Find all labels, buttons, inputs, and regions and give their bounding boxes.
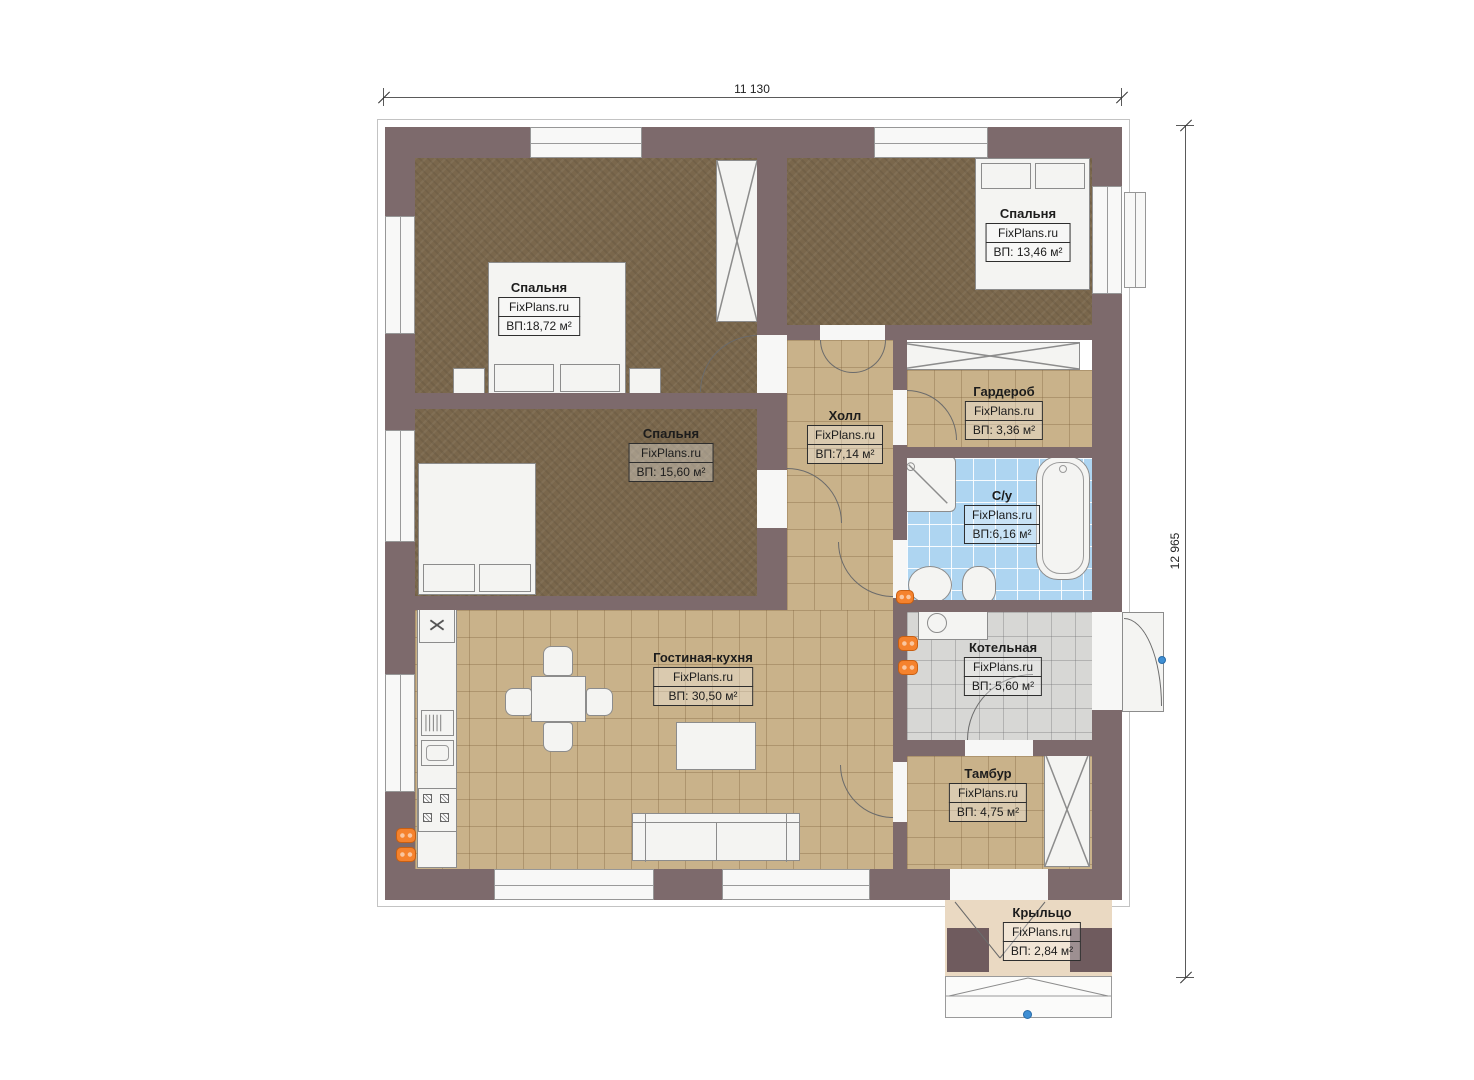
bedroom3-pillow-left xyxy=(423,564,475,592)
radiator-boiler-2 xyxy=(898,660,918,675)
area-box: ВП:18,72 м² xyxy=(498,316,580,336)
bedroom1-pillow-right xyxy=(560,364,620,392)
coffee-table xyxy=(676,722,756,770)
dining-chair-bottom xyxy=(543,722,573,752)
dimension-width-label: 11 130 xyxy=(734,82,770,96)
room-name: Гостиная-кухня xyxy=(653,650,753,665)
radiator-bathroom xyxy=(896,590,914,604)
window-bottom-living-2 xyxy=(722,869,870,900)
brand-box: FixPlans.ru xyxy=(949,783,1027,803)
area-box: ВП: 15,60 м² xyxy=(629,462,714,482)
window-right-bedroom2 xyxy=(1092,186,1122,294)
room-name: Крыльцо xyxy=(1003,905,1081,920)
room-name: Спальня xyxy=(629,426,714,441)
area-box: ВП: 4,75 м² xyxy=(949,802,1027,822)
dimension-line-width xyxy=(383,97,1122,98)
area-box: ВП: 3,36 м² xyxy=(965,420,1043,440)
door-opening-entrance xyxy=(950,869,1048,900)
brand-box: FixPlans.ru xyxy=(986,223,1071,243)
area-box: ВП: 30,50 м² xyxy=(653,686,753,706)
room-name: Гардероб xyxy=(965,384,1043,399)
room-label-hall: Холл FixPlans.ru ВП:7,14 м² xyxy=(807,408,883,464)
radiator-kitchen-2 xyxy=(396,847,416,862)
bedroom2-pillow-right xyxy=(1035,163,1085,189)
bathroom-sink xyxy=(908,566,952,604)
brand-box: FixPlans.ru xyxy=(965,401,1043,421)
wall-wardrobe-bathroom xyxy=(893,447,1092,458)
radiator-boiler-1 xyxy=(898,636,918,651)
floor-plan-canvas: Спальня FixPlans.ru ВП:18,72 м² Спальня … xyxy=(0,0,1474,1080)
room-label-wardrobe-room: Гардероб FixPlans.ru ВП: 3,36 м² xyxy=(965,384,1043,440)
exterior-wall-top xyxy=(385,127,1122,158)
window-ledge-right xyxy=(1124,192,1146,288)
door-opening-bedroom3 xyxy=(757,470,787,528)
window-left-kitchen xyxy=(385,674,415,792)
window-top-bedroom2 xyxy=(874,127,988,158)
bedroom3-pillow-right xyxy=(479,564,531,592)
room-label-bedroom-2: Спальня FixPlans.ru ВП: 13,46 м² xyxy=(986,206,1071,262)
dining-chair-right xyxy=(586,688,613,716)
dimension-line-height xyxy=(1185,125,1186,977)
window-left-bedroom1 xyxy=(385,216,415,334)
area-box: ВП: 5,60 м² xyxy=(964,676,1042,696)
room-name: Спальня xyxy=(498,280,580,295)
bathtub xyxy=(1036,456,1090,580)
sofa xyxy=(632,813,800,861)
bedroom1-pillow-left xyxy=(494,364,554,392)
dining-table xyxy=(531,676,586,722)
room-label-living-kitchen: Гостиная-кухня FixPlans.ru ВП: 30,50 м² xyxy=(653,650,753,706)
room-name: С/у xyxy=(964,488,1040,503)
radiator-kitchen-1 xyxy=(396,828,416,843)
door-opening-vestibule xyxy=(893,762,907,822)
room-name: Котельная xyxy=(964,640,1042,655)
door-opening-boiler xyxy=(965,740,1033,756)
shower-tray xyxy=(900,456,956,512)
kitchen-stove xyxy=(418,788,457,832)
brand-box: FixPlans.ru xyxy=(629,443,714,463)
bedroom1-wardrobe xyxy=(716,160,758,322)
brand-box: FixPlans.ru xyxy=(964,505,1040,525)
door-opening-wardrobe xyxy=(893,390,907,445)
marker-dot-right xyxy=(1158,656,1166,664)
area-box: ВП: 2,84 м² xyxy=(1003,941,1081,961)
room-label-bedroom-1: Спальня FixPlans.ru ВП:18,72 м² xyxy=(498,280,580,336)
door-opening-bedroom2 xyxy=(820,325,885,340)
room-name: Холл xyxy=(807,408,883,423)
area-box: ВП:6,16 м² xyxy=(964,524,1040,544)
door-opening-boiler-exterior xyxy=(1092,612,1122,710)
bedroom2-closet xyxy=(900,342,1080,370)
room-label-boiler-room: Котельная FixPlans.ru ВП: 5,60 м² xyxy=(964,640,1042,696)
window-left-bedroom3 xyxy=(385,430,415,542)
toilet xyxy=(962,566,996,604)
wall-bedroom3-bottom xyxy=(415,596,760,610)
room-label-bedroom-3: Спальня FixPlans.ru ВП: 15,60 м² xyxy=(629,426,714,482)
area-box: ВП: 13,46 м² xyxy=(986,242,1071,262)
bedroom2-pillow-left xyxy=(981,163,1031,189)
room-label-vestibule: Тамбур FixPlans.ru ВП: 4,75 м² xyxy=(949,766,1027,822)
marker-dot-porch xyxy=(1023,1010,1032,1019)
kitchen-sink-2 xyxy=(421,740,454,766)
wall-bedroom1-bottom xyxy=(415,393,787,409)
dining-chair-top xyxy=(543,646,573,676)
brand-box: FixPlans.ru xyxy=(653,667,753,687)
brand-box: FixPlans.ru xyxy=(964,657,1042,677)
dining-chair-left xyxy=(505,688,532,716)
kitchen-sink-unit xyxy=(419,607,455,643)
dimension-height-label: 12 965 xyxy=(1168,533,1182,570)
door-opening-bedroom1 xyxy=(757,335,787,393)
window-top-bedroom1 xyxy=(530,127,642,158)
brand-box: FixPlans.ru xyxy=(807,425,883,445)
brand-box: FixPlans.ru xyxy=(1003,922,1081,942)
vestibule-wardrobe xyxy=(1044,752,1090,867)
room-name: Спальня xyxy=(986,206,1071,221)
brand-box: FixPlans.ru xyxy=(498,297,580,317)
room-label-porch: Крыльцо FixPlans.ru ВП: 2,84 м² xyxy=(1003,905,1081,961)
wall-bathroom-boiler xyxy=(893,600,1092,612)
area-box: ВП:7,14 м² xyxy=(807,444,883,464)
room-label-bathroom: С/у FixPlans.ru ВП:6,16 м² xyxy=(964,488,1040,544)
window-bottom-living-1 xyxy=(494,869,654,900)
room-name: Тамбур xyxy=(949,766,1027,781)
kitchen-dishwasher xyxy=(421,710,454,736)
